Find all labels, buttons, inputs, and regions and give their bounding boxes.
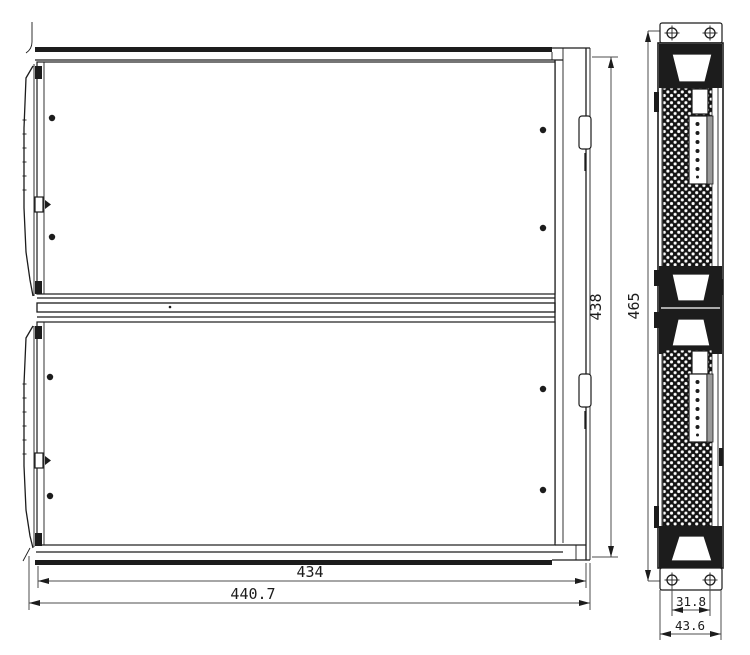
handle-middle-pair: [659, 266, 722, 354]
module-1-face: [663, 88, 713, 270]
dim-label-438: 438: [587, 293, 605, 320]
dim-label-43-6: 43.6: [675, 618, 705, 633]
dim-label-465: 465: [625, 292, 643, 319]
dim-label-440-7: 440.7: [230, 585, 275, 603]
latch-2: [35, 453, 43, 468]
panel-1: [37, 62, 555, 294]
corner-clip: [35, 533, 42, 546]
handle-cutout: [672, 274, 710, 301]
screw-dot: [49, 115, 55, 121]
screw-dot: [47, 493, 53, 499]
screw-dot: [47, 374, 53, 380]
top-rail: [35, 47, 552, 52]
technical-drawing-canvas: 434 440.7 438 465: [0, 0, 750, 655]
module-2-face: [663, 350, 713, 532]
corner-clip: [35, 326, 42, 339]
handle-top: [659, 44, 722, 88]
connector-opening: [692, 89, 708, 114]
panel-2: [37, 322, 555, 545]
corner-tick: [26, 22, 32, 53]
top-view: [23, 22, 592, 565]
drawing-svg: 434 440.7 438 465: [0, 0, 750, 655]
dim-depth-body: 438: [587, 57, 618, 557]
corner-clip: [35, 66, 42, 79]
rear-latch-2: [579, 374, 591, 407]
corner-clip: [35, 281, 42, 294]
screw-dot: [540, 225, 546, 231]
handle-cutout: [672, 54, 712, 82]
screw-dot: [540, 487, 546, 493]
handle-bottom: [659, 526, 722, 568]
side-view: 31.8 43.6: [654, 23, 723, 640]
rear-latch-1: [579, 116, 591, 149]
screw-dot: [540, 386, 546, 392]
dim-label-434: 434: [296, 563, 323, 581]
screw-dot: [540, 127, 546, 133]
screw-dot: [49, 234, 55, 240]
dim-label-31-8: 31.8: [676, 594, 706, 609]
panel-divider: [37, 298, 555, 317]
connector-opening: [692, 351, 708, 374]
divider-bar: [37, 303, 555, 312]
bottom-rail: [35, 560, 552, 565]
rear-latches: [579, 116, 591, 429]
latch-1: [35, 197, 43, 212]
dim-width-inner: 434: [38, 563, 586, 588]
handle-cutout: [672, 319, 710, 346]
mounting-bracket-bottom: [660, 568, 722, 590]
